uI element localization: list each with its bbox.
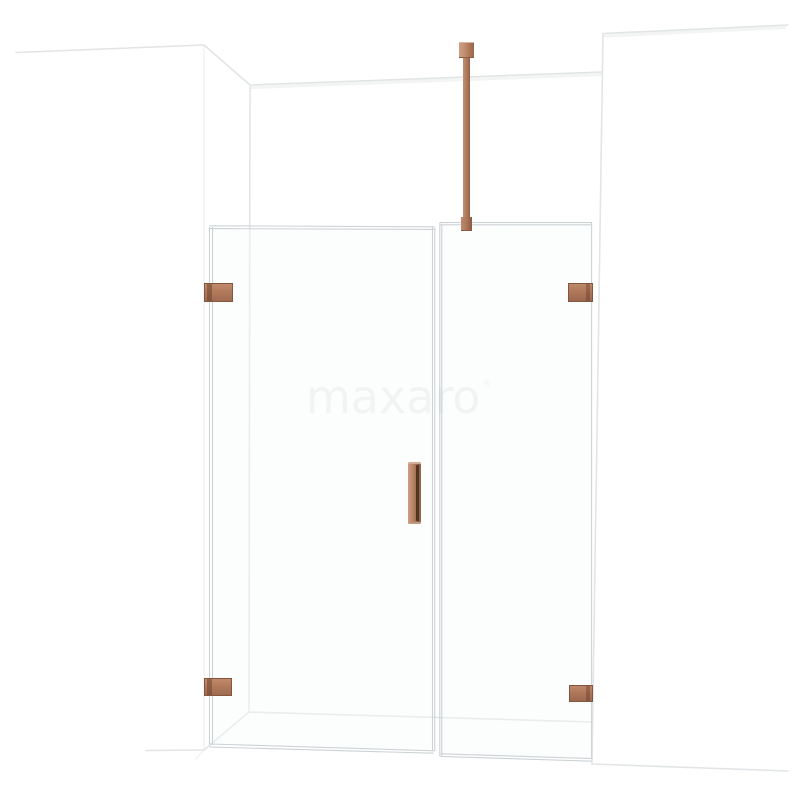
ceiling-line-shadows [250,28,786,88]
glass-door-outline [210,226,436,753]
room-and-glass-linework [0,0,800,800]
handle-groove [416,465,419,521]
panel-wall-bracket-bottom [569,685,593,703]
ceiling-support-bar [463,55,471,218]
hinge-glass-clamp [207,284,212,301]
support-bar-glass-bracket [461,217,472,232]
shower-door-product-render: maxaro® [0,0,800,800]
bracket-glass-clamp [586,686,590,702]
door-hinge-bottom [204,678,232,696]
bracket-glass-clamp [586,284,590,301]
right-wall-lines [592,25,788,771]
ceiling-mount-cap [459,42,474,58]
door-handle [408,462,421,524]
door-hinge-top [204,283,233,302]
glass-side-panel-outline [440,223,592,762]
hinge-glass-clamp [207,679,212,695]
panel-wall-bracket-top [568,283,593,302]
